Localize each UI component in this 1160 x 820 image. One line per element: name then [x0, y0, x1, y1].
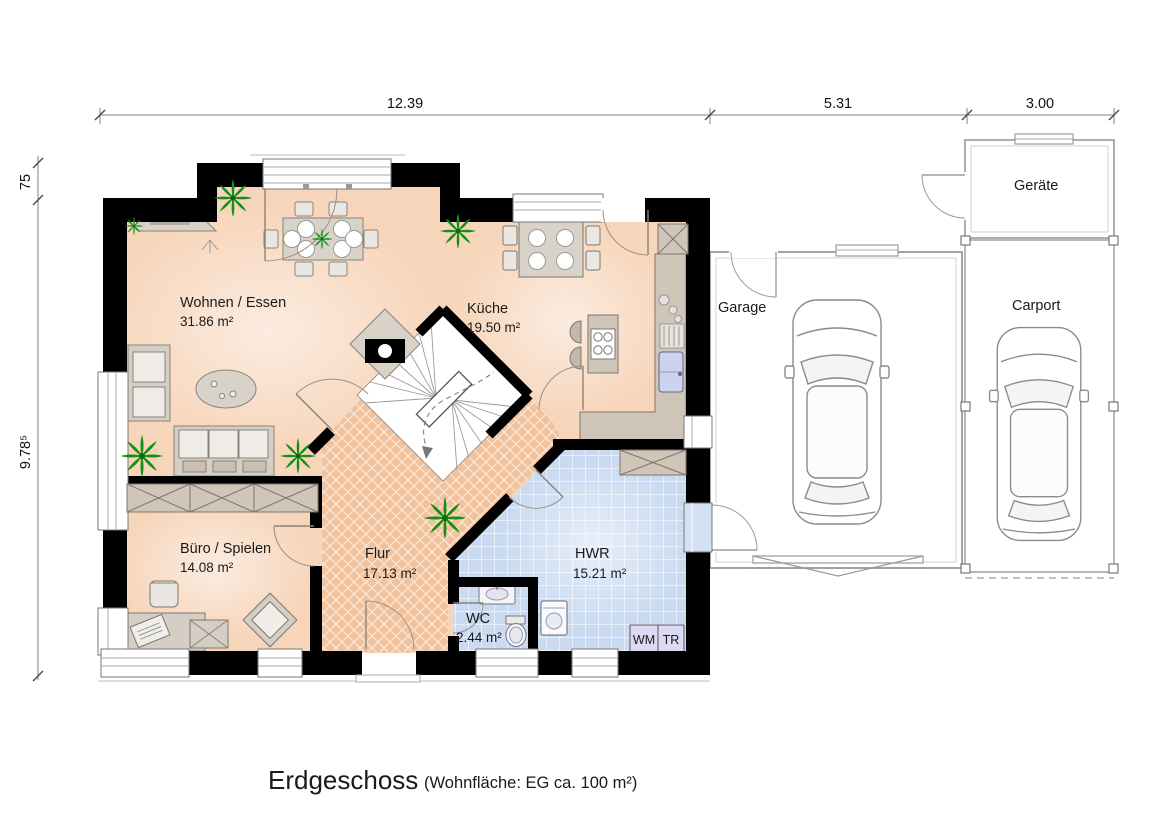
label-dryer: TR [663, 633, 680, 647]
dim-label-carport-width: 3.00 [1026, 96, 1054, 112]
geraete-door-swing [922, 175, 965, 218]
garage-top-door-opening [729, 247, 778, 258]
area-label-hwr: 15.21 m² [573, 566, 627, 581]
corner-window-bottom [101, 649, 189, 677]
room-label-garage: Garage [718, 300, 766, 316]
room-label-hwr: HWR [575, 546, 610, 562]
garage-room [706, 245, 962, 576]
dim-label-house-width: 12.39 [387, 96, 423, 112]
plant-icon [214, 179, 252, 217]
plant-icon [440, 213, 476, 249]
plant-icon [121, 435, 163, 477]
label-washer: WM [633, 633, 655, 647]
dim-label-house-depth: 9.78⁵ [18, 435, 34, 469]
hwr-window [572, 649, 618, 677]
plant-icon [424, 497, 466, 539]
entrance-step [356, 675, 420, 682]
page-subtitle: (Wohnfläche: EG ca. 100 m²) [424, 774, 637, 792]
dim-label-offset: 75 [18, 174, 34, 190]
armchairs [128, 345, 170, 421]
kitchen-island [588, 315, 618, 373]
room-label-buero: Büro / Spielen [180, 541, 271, 557]
room-label-wc: WC [466, 611, 490, 627]
kitchen-window [513, 194, 603, 222]
area-label-wc: 2.44 m² [456, 630, 502, 645]
wc-window [476, 649, 538, 677]
room-label-geraete: Geräte [1014, 178, 1058, 194]
area-label-kueche: 19.50 m² [467, 320, 521, 335]
geraete-door-opening [961, 172, 970, 220]
living-window [98, 372, 128, 530]
kitchen-sink [659, 352, 683, 392]
coffee-table [196, 370, 256, 408]
washing-machine-symbol [541, 601, 567, 635]
plant-icon [312, 229, 333, 250]
room-label-carport: Carport [1012, 298, 1060, 314]
room-label-kueche: Küche [467, 301, 508, 317]
terrace-door [263, 159, 391, 189]
car-top-view-carport [990, 328, 1089, 541]
kitchen-door-opening [601, 198, 645, 222]
floor-plan-drawing: 12.39 5.31 3.00 75 9.78⁵ [0, 0, 1160, 820]
side-window-lower [684, 503, 712, 552]
floor-plan-page: 12.39 5.31 3.00 75 9.78⁵ [0, 0, 1160, 820]
car-top-view-garage [785, 300, 889, 524]
toilet [506, 616, 526, 647]
page-title: Erdgeschoss [268, 765, 418, 795]
side-table [190, 620, 228, 648]
desk-chair [150, 581, 178, 607]
room-label-flur: Flur [365, 546, 390, 562]
carport-area [961, 236, 1118, 578]
sofa [174, 426, 274, 476]
area-label-flur: 17.13 m² [363, 566, 417, 581]
plant-icon [280, 438, 316, 474]
side-window-upper [684, 416, 712, 448]
room-label-wohnen: Wohnen / Essen [180, 295, 286, 311]
area-label-buero: 14.08 m² [180, 560, 234, 575]
plant-icon [125, 217, 144, 236]
dim-label-garage-width: 5.31 [824, 96, 852, 112]
office-window [258, 649, 302, 677]
kitchen-table [519, 221, 583, 277]
area-label-wohnen: 31.86 m² [180, 314, 234, 329]
corner-window-left [98, 608, 128, 655]
